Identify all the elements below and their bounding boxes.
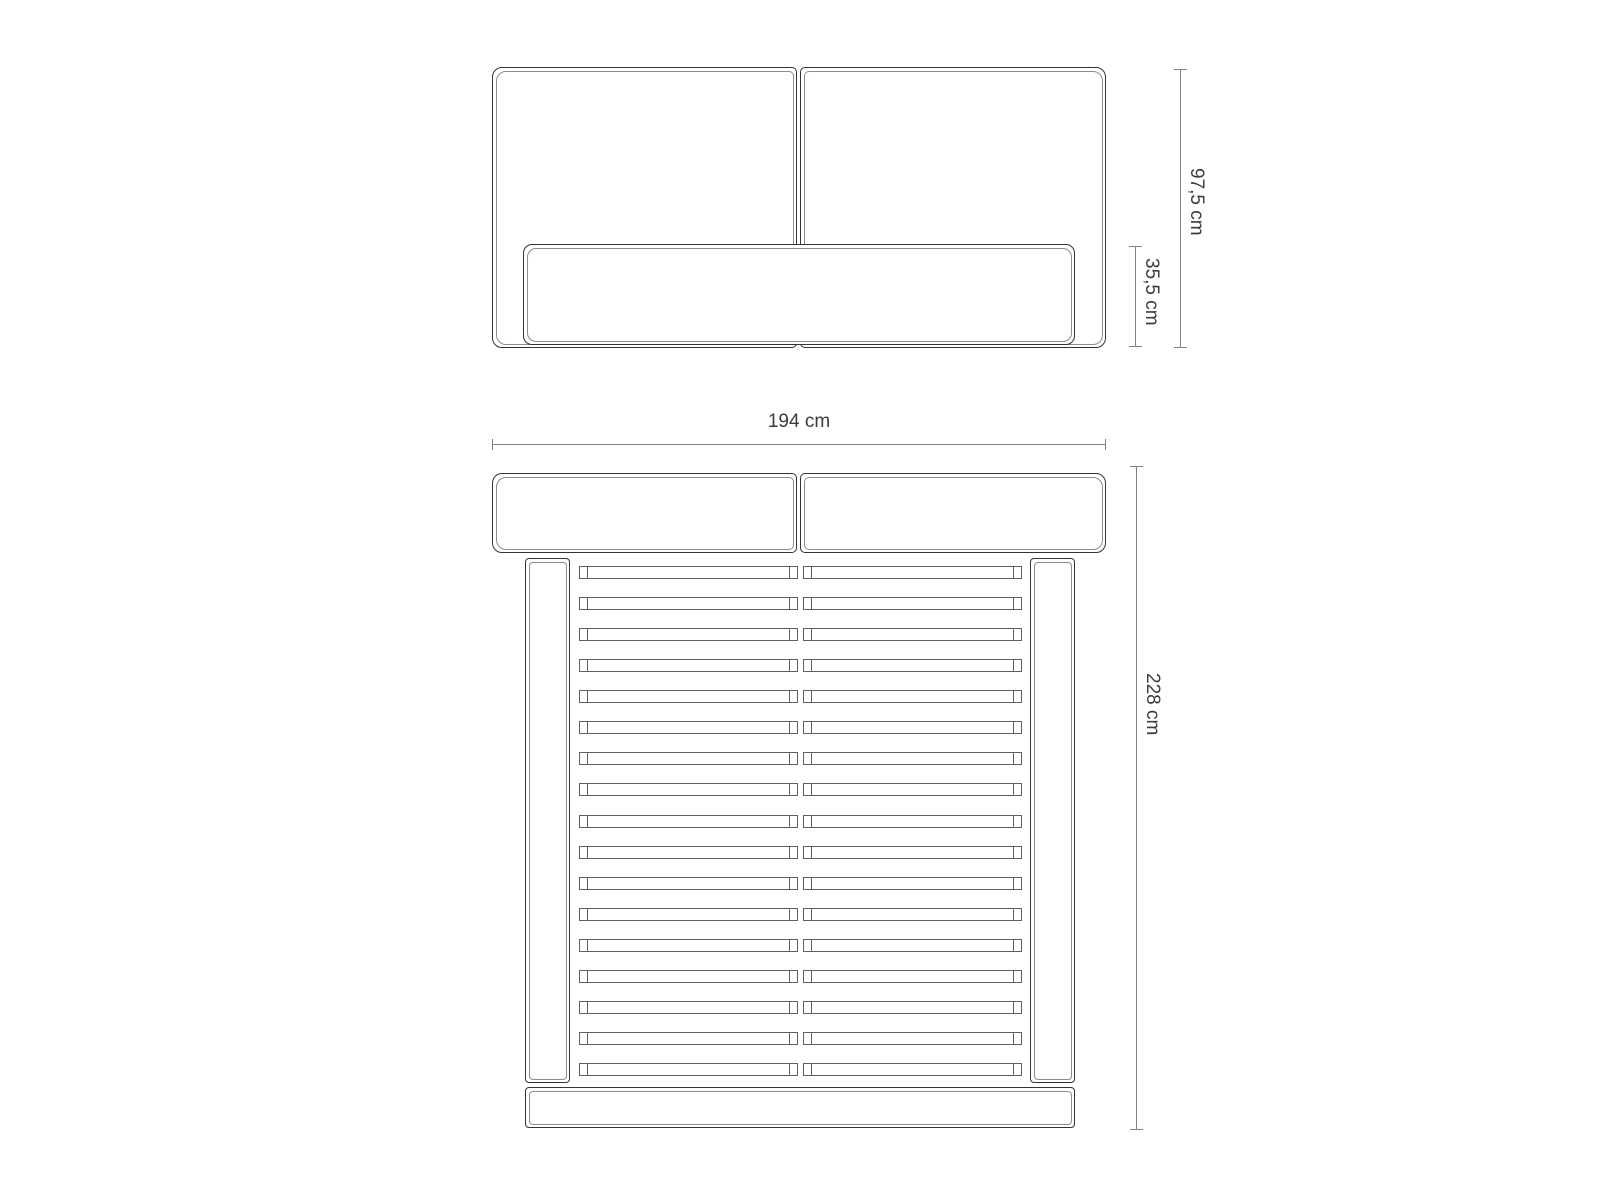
- bed-slat: [803, 1001, 1022, 1014]
- bed-slat: [579, 690, 798, 703]
- bed-slat: [803, 815, 1022, 828]
- bed-slat: [579, 1063, 798, 1076]
- dimension-line-total-height: [1180, 69, 1181, 348]
- bed-slat: [579, 752, 798, 765]
- dimension-label-total-height: 97,5 cm: [1184, 168, 1207, 236]
- slat-row: [579, 752, 1022, 765]
- bed-slat: [579, 970, 798, 983]
- slat-row: [579, 597, 1022, 610]
- slat-row: [579, 970, 1022, 983]
- footboard-rail: [525, 1087, 1075, 1128]
- bed-technical-drawing: 97,5 cm 35,5 cm 194 cm 228 cm: [0, 0, 1599, 1199]
- bed-slat: [579, 628, 798, 641]
- slat-row: [579, 628, 1022, 641]
- bed-slat: [803, 721, 1022, 734]
- bed-slat: [579, 877, 798, 890]
- headboard-plan-left-panel: [492, 473, 797, 553]
- bed-slat: [579, 566, 798, 579]
- bed-slat: [803, 970, 1022, 983]
- slat-row: [579, 1032, 1022, 1045]
- dimension-label-rail-height: 35,5 cm: [1139, 258, 1162, 326]
- bed-slat: [579, 846, 798, 859]
- slat-grid: [579, 566, 1022, 1077]
- bed-frame-front-rail: [523, 244, 1075, 345]
- bed-slat: [579, 659, 798, 672]
- slat-row: [579, 877, 1022, 890]
- slat-row: [579, 846, 1022, 859]
- bed-slat: [803, 1032, 1022, 1045]
- slat-row: [579, 815, 1022, 828]
- slat-row: [579, 659, 1022, 672]
- dimension-line-length: [1136, 466, 1137, 1130]
- bed-slat: [579, 597, 798, 610]
- bed-slat: [579, 1032, 798, 1045]
- bed-slat: [803, 659, 1022, 672]
- dimension-line-width: [492, 444, 1106, 445]
- bed-slat: [803, 908, 1022, 921]
- bed-slat: [803, 597, 1022, 610]
- slat-row: [579, 1001, 1022, 1014]
- bed-slat: [803, 690, 1022, 703]
- slat-row: [579, 1063, 1022, 1076]
- bed-slat: [579, 815, 798, 828]
- side-rail-left: [525, 558, 570, 1083]
- bed-slat: [803, 1063, 1022, 1076]
- dimension-label-length: 228 cm: [1140, 673, 1163, 735]
- bed-slat: [579, 783, 798, 796]
- bed-slat: [803, 783, 1022, 796]
- bed-slat: [803, 752, 1022, 765]
- side-rail-right: [1030, 558, 1075, 1083]
- bed-slat: [579, 721, 798, 734]
- headboard-plan-right-panel: [800, 473, 1106, 553]
- slat-row: [579, 690, 1022, 703]
- bed-slat: [803, 628, 1022, 641]
- slat-row: [579, 908, 1022, 921]
- dimension-label-width: 194 cm: [492, 411, 1106, 434]
- slat-row: [579, 939, 1022, 952]
- bed-slat: [579, 1001, 798, 1014]
- bed-slat: [803, 939, 1022, 952]
- slat-row: [579, 721, 1022, 734]
- bed-slat: [803, 846, 1022, 859]
- slat-row: [579, 566, 1022, 579]
- slat-row: [579, 783, 1022, 796]
- dimension-line-rail-height: [1135, 246, 1136, 347]
- bed-slat: [803, 566, 1022, 579]
- bed-slat: [579, 939, 798, 952]
- bed-slat: [579, 908, 798, 921]
- bed-slat: [803, 877, 1022, 890]
